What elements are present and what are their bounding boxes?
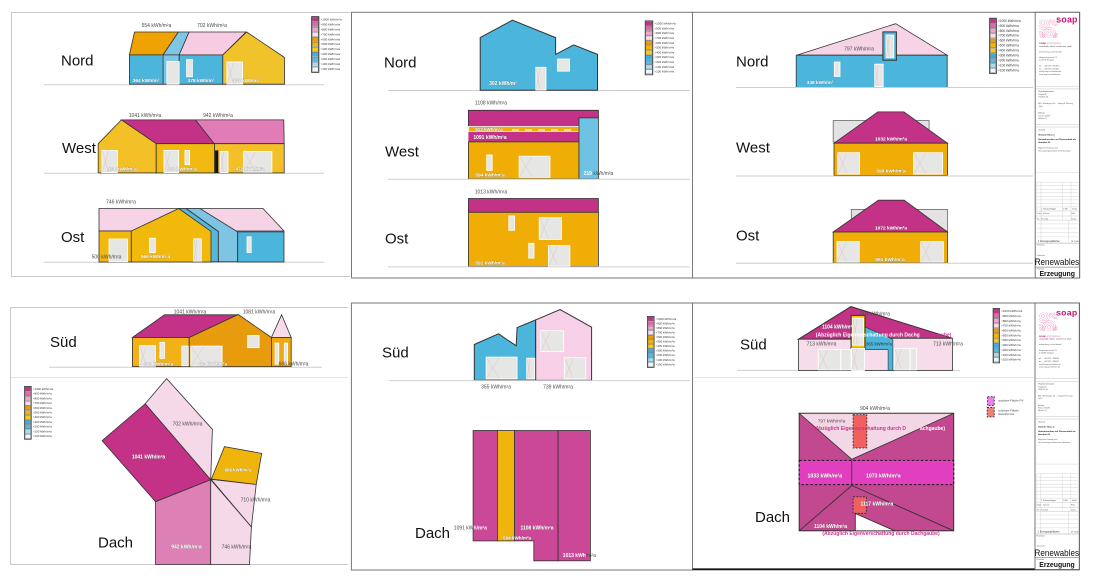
svg-text:Projekt-Nr.: Projekt-Nr. [1038, 93, 1047, 96]
svg-text:Nord: Nord [736, 54, 769, 71]
svg-text:594 kWh/m²a: 594 kWh/m²a [503, 535, 532, 540]
svg-text:904 kWh/m²a: 904 kWh/m²a [860, 311, 890, 317]
svg-text:Datum: Datum [1071, 217, 1077, 220]
svg-text:>300 kWh/m²a: >300 kWh/m²a [654, 55, 674, 59]
svg-text:soap architekten: soap architekten [1039, 41, 1061, 45]
svg-text:B97: Würzburger Str. – Integra: B97: Würzburger Str. – Integrale Planung [1038, 394, 1072, 397]
svg-text:M 1:100: M 1:100 [1071, 241, 1078, 243]
svg-text:>900 kWh/m²a: >900 kWh/m²a [656, 321, 675, 325]
svg-text:1032 kWh/m²a: 1032 kWh/m²a [875, 137, 907, 143]
svg-text:Variante Haus 3: Variante Haus 3 [1038, 425, 1055, 428]
svg-text:>700 kWh/m²a: >700 kWh/m²a [998, 34, 1019, 38]
svg-text:1 Erzeugungsflächen: 1 Erzeugungsflächen [1038, 532, 1061, 534]
svg-text:Hauptmannsreute 23: Hauptmannsreute 23 [1039, 349, 1057, 352]
svg-text:>300 kWh/m²a: >300 kWh/m²a [1001, 343, 1021, 347]
svg-text:Verschattungssituation ohne Na: Verschattungssituation ohne Nachbarn [1038, 149, 1070, 152]
svg-text:Standort 03: Standort 03 [1038, 433, 1051, 436]
svg-text:Hauptmannsreute 23: Hauptmannsreute 23 [1039, 56, 1057, 59]
svg-text:904 kWh/m²a: 904 kWh/m²a [860, 406, 890, 412]
svg-text:tel. +49 0711 / 990410: tel. +49 0711 / 990410 [1039, 64, 1059, 67]
svg-text:(Muster 1): (Muster 1) [1038, 409, 1047, 412]
svg-text:942 kWh/m²a: 942 kWh/m²a [203, 113, 233, 119]
svg-text:>500 kWh/m²a: >500 kWh/m²a [1001, 333, 1021, 337]
svg-text:378 kWh/m²: 378 kWh/m² [188, 78, 215, 84]
svg-text:Ost: Ost [736, 228, 760, 245]
svg-text:>800 kWh/m²a: >800 kWh/m²a [654, 31, 674, 35]
svg-text:Ost: Ost [61, 229, 85, 246]
svg-text:Verschattungssituation ohne Na: Verschattungssituation ohne Nachbarn [1038, 441, 1070, 444]
svg-text:Datum: Datum [1071, 508, 1077, 511]
svg-text:1 Schalunterlagen: 1 Schalunterlagen [1041, 499, 1056, 502]
svg-text:750437a-01: 750437a-01 [1038, 97, 1048, 99]
svg-text:Dach: Dach [755, 509, 790, 526]
svg-text:913 kWh/m²a: 913 kWh/m²a [475, 127, 503, 132]
svg-text:Auftrag:: Auftrag: [1038, 112, 1045, 115]
svg-text:aube): aube) [938, 332, 952, 338]
svg-text:739 kWh/m²a: 739 kWh/m²a [543, 385, 573, 391]
svg-text:(Abzüglich Eigenverschattung d: (Abzüglich Eigenverschattung durch Dachg… [822, 531, 940, 537]
svg-text:>500 kWh/m²a: >500 kWh/m²a [321, 42, 341, 46]
svg-text:>400 kWh/m²a: >400 kWh/m²a [656, 344, 675, 348]
svg-text:Index Variante: Index Variante [1037, 503, 1049, 506]
svg-text:1072 kWh/m²a: 1072 kWh/m²a [875, 225, 907, 231]
svg-text:Platz: Platz [1071, 503, 1075, 506]
svg-text:Auftrag:: Auftrag: [1038, 404, 1045, 407]
svg-text:>200 kWh/m²a: >200 kWh/m²a [998, 58, 1019, 62]
svg-text:1117 kWh/m²a: 1117 kWh/m²a [861, 502, 894, 508]
svg-text:-50%: -50% [1038, 106, 1043, 108]
svg-text:>600 kWh/m²a: >600 kWh/m²a [656, 335, 675, 339]
svg-text:<100 kWh/m²a: <100 kWh/m²a [33, 434, 52, 438]
svg-text:Holzrahmenbau mit Photovoltaik: Holzrahmenbau mit Photovoltaik als [1038, 138, 1076, 141]
svg-text:<100 kWh/m²a: <100 kWh/m²a [656, 362, 675, 366]
svg-text:>800 kWh/m²a: >800 kWh/m²a [33, 396, 52, 400]
svg-text:<100 kWh/m²a: <100 kWh/m²a [1001, 358, 1021, 362]
svg-text:348 kWh/m²: 348 kWh/m² [807, 80, 834, 86]
svg-text:433 kWh/m²: 433 kWh/m² [233, 78, 260, 84]
svg-text:590 kWh/m²a: 590 kWh/m²a [876, 169, 906, 175]
svg-text:>700 kWh/m²a: >700 kWh/m²a [321, 32, 341, 36]
svg-text:594 kWh/m²a: 594 kWh/m²a [475, 173, 505, 179]
svg-text:593 kWh/m²a: 593 kWh/m²a [144, 361, 174, 367]
svg-text:soap: soap [1056, 308, 1077, 318]
svg-text:1041 kWh/m²a: 1041 kWh/m²a [132, 455, 166, 461]
svg-text:M 1:100: M 1:100 [1071, 532, 1078, 534]
svg-text:Erzeugung: Erzeugung [1039, 560, 1075, 569]
svg-text:1104 kWh/m²a: 1104 kWh/m²a [814, 524, 847, 530]
svg-text:Süd: Süd [50, 334, 77, 351]
svg-text:>300 kWh/m²a: >300 kWh/m²a [321, 52, 341, 56]
svg-text:West: West [385, 144, 420, 161]
svg-text:Standort 03: Standort 03 [1038, 141, 1051, 144]
svg-text:soap: soap [1056, 15, 1078, 25]
svg-text:>900 kWh/m²a: >900 kWh/m²a [1001, 314, 1021, 318]
svg-text:>100 kWh/m²a: >100 kWh/m²a [998, 63, 1019, 67]
svg-text:<100 kWh/m²a: <100 kWh/m²a [654, 70, 674, 74]
svg-text:591 kWh/m²a: 591 kWh/m²a [475, 260, 505, 266]
svg-text:1091 kWh/m²a: 1091 kWh/m²a [473, 135, 507, 141]
svg-text:746 kWh/m²a: 746 kWh/m²a [222, 545, 252, 551]
svg-text:>200 kWh/m²a: >200 kWh/m²a [656, 353, 675, 357]
svg-text:>800 kWh/m²a: >800 kWh/m²a [998, 29, 1019, 33]
svg-text:>500 kWh/m²a: >500 kWh/m²a [656, 340, 675, 344]
svg-text:>700 kWh/m²a: >700 kWh/m²a [33, 401, 52, 405]
svg-text:West: West [736, 140, 771, 157]
svg-text:fax +49 0711 / 990411: fax +49 0711 / 990411 [1039, 68, 1059, 70]
svg-text:Eigenverschattung und: Eigenverschattung und [1038, 146, 1057, 149]
svg-text:>900 kWh/m²a: >900 kWh/m²a [654, 26, 674, 30]
svg-text:>400 kWh/m²a: >400 kWh/m²a [1001, 338, 1021, 342]
svg-text:1:100: 1:100 [1063, 500, 1067, 502]
svg-text:Erzeugung: Erzeugung [1039, 269, 1075, 278]
svg-text:>700 kWh/m²a: >700 kWh/m²a [654, 36, 674, 40]
svg-text:>1000 kWh/m²a: >1000 kWh/m²a [33, 387, 54, 391]
svg-text:Index Variante: Index Variante [1037, 212, 1049, 215]
svg-text:Nr. Pl.-Inhalt: Nr. Pl.-Inhalt [1037, 508, 1048, 511]
svg-text:702 kWh/m²a: 702 kWh/m²a [197, 23, 227, 29]
svg-text:Variante Haus 3: Variante Haus 3 [1038, 133, 1055, 136]
svg-text:Nr. Pl.-Inhalt: Nr. Pl.-Inhalt [1037, 217, 1048, 220]
svg-text:710 kWh/m²a: 710 kWh/m²a [241, 498, 271, 504]
svg-text:B97: Würzburger Str. – Integra: B97: Würzburger Str. – Integrale Planung [1038, 102, 1073, 105]
svg-text:(Muster 1): (Muster 1) [1038, 117, 1047, 120]
svg-text:Gewerk: Gewerk [1038, 420, 1045, 423]
svg-text:>400 kWh/m²a: >400 kWh/m²a [33, 415, 52, 419]
svg-text:miriam berry, rachel brandt: miriam berry, rachel brandt [1039, 343, 1062, 346]
svg-text:(Abzüglich Eigenverschattung d: (Abzüglich Eigenverschattung durch D [814, 426, 907, 432]
svg-text:591 kWh/m²a: 591 kWh/m²a [875, 257, 905, 263]
svg-text:>100 kWh/m²a: >100 kWh/m²a [654, 65, 674, 69]
svg-text:>200 kWh/m²a: >200 kWh/m²a [654, 60, 674, 64]
svg-text:>200 kWh/m²a: >200 kWh/m²a [321, 57, 341, 61]
svg-text:1091 kWh/m²a: 1091 kWh/m²a [454, 526, 487, 532]
svg-text:746 kWh/m²a: 746 kWh/m²a [106, 200, 136, 206]
svg-text:219 kWh/m²a: 219 kWh/m²a [584, 171, 614, 177]
svg-text:302 kWh/m²: 302 kWh/m² [489, 81, 517, 87]
svg-text:tel. +49 0711 / 990410: tel. +49 0711 / 990410 [1039, 357, 1059, 360]
svg-text:>700 kWh/m²a: >700 kWh/m²a [656, 330, 675, 334]
svg-text:364 kWh/m²: 364 kWh/m² [133, 78, 160, 84]
svg-text:606 kWh/m²a: 606 kWh/m²a [225, 468, 252, 473]
svg-text:797 kWh/m²a: 797 kWh/m²a [844, 47, 874, 53]
svg-text:>600 kWh/m²a: >600 kWh/m²a [998, 39, 1019, 43]
svg-text:>500 kWh/m²a: >500 kWh/m²a [33, 411, 52, 415]
svg-text:500 kWh/m²a: 500 kWh/m²a [92, 255, 122, 261]
svg-text:Projekt-Nr.: Projekt-Nr. [1038, 385, 1047, 388]
svg-text:>400 kWh/m²a: >400 kWh/m²a [654, 50, 674, 54]
svg-text:750437a-01: 750437a-01 [1038, 389, 1048, 391]
svg-text:702 kWh/m²a: 702 kWh/m²a [173, 422, 203, 428]
svg-text:Projektinformation: Projektinformation [1038, 90, 1054, 93]
svg-text:>900 kWh/m²a: >900 kWh/m²a [998, 24, 1019, 28]
svg-text:Nord: Nord [384, 55, 417, 72]
svg-text:1108 kWh/m²a: 1108 kWh/m²a [520, 526, 553, 532]
svg-text:sustainable. effects. architec: sustainable. effects. architecture. pool… [1039, 45, 1072, 48]
svg-text:>1000 kWh/m²a: >1000 kWh/m²a [1001, 309, 1023, 313]
svg-text:Platz: Platz [1071, 212, 1075, 215]
svg-text:>200 kWh/m²a: >200 kWh/m²a [33, 425, 52, 429]
svg-text:Gewerk: Gewerk [1038, 129, 1045, 131]
svg-text:miriam berry, rachel brandt: miriam berry, rachel brandt [1039, 50, 1062, 53]
svg-text:>100 kWh/m²a: >100 kWh/m²a [33, 429, 52, 433]
svg-text:Planinhalt: Planinhalt [1037, 535, 1045, 538]
svg-text:797 kWh/m²a: 797 kWh/m²a [818, 419, 846, 424]
svg-text:achgaube): achgaube) [920, 426, 945, 432]
svg-text:Dach: Dach [98, 535, 133, 552]
svg-text:>700 kWh/m²a: >700 kWh/m²a [1001, 324, 1021, 328]
svg-text:>600 kWh/m²a: >600 kWh/m²a [654, 41, 674, 45]
svg-text:>1000 kWh/m²a: >1000 kWh/m²a [654, 21, 676, 25]
svg-text:Süd: Süd [740, 337, 767, 354]
svg-text:Solarthermie: Solarthermie [998, 412, 1015, 416]
svg-text:>800 kWh/m²a: >800 kWh/m²a [321, 27, 341, 31]
svg-text:>100 kWh/m²a: >100 kWh/m²a [321, 62, 341, 66]
svg-text:>600 kWh/m²a: >600 kWh/m²a [33, 406, 52, 410]
svg-text:Holzrahmenbau mit Photovoltaik: Holzrahmenbau mit Photovoltaik als [1038, 430, 1076, 433]
svg-text:Renewables: Renewables [1035, 548, 1080, 558]
svg-text:>400 kWh/m²a: >400 kWh/m²a [321, 47, 341, 51]
svg-text:D-70192 Stuttgart: D-70192 Stuttgart [1039, 351, 1054, 354]
svg-text:mail@soap-architekten.de: mail@soap-architekten.de [1039, 70, 1061, 73]
svg-text:Eigenverschattung und: Eigenverschattung und [1038, 438, 1057, 441]
svg-text:>100 kWh/m²a: >100 kWh/m²a [656, 358, 675, 362]
svg-text:1081 kWh/m²a: 1081 kWh/m²a [243, 310, 276, 316]
svg-text:soap architekten: soap architekten [1039, 334, 1061, 338]
svg-text:1 Erzeugungsflächen: 1 Erzeugungsflächen [1038, 240, 1061, 243]
svg-text:>500 kWh/m²a: >500 kWh/m²a [654, 46, 674, 50]
svg-text:Immos GmbH: Immos GmbH [1038, 115, 1050, 117]
svg-text:>100 kWh/m²a: >100 kWh/m²a [1001, 353, 1021, 357]
svg-text:1013 kWh/m²a: 1013 kWh/m²a [563, 553, 596, 559]
svg-text:D-70192 Stuttgart: D-70192 Stuttgart [1039, 59, 1054, 62]
svg-text:666 kWh/m²a: 666 kWh/m²a [279, 361, 309, 367]
svg-text:1 Schalunterlagen: 1 Schalunterlagen [1041, 208, 1056, 211]
svg-text:>800 kWh/m²a: >800 kWh/m²a [656, 326, 675, 330]
svg-text:>400 kWh/m²a: >400 kWh/m²a [998, 49, 1019, 53]
svg-text:>300 kWh/m²a: >300 kWh/m²a [33, 420, 52, 424]
svg-text:1013 kWh/m²a: 1013 kWh/m²a [475, 190, 508, 196]
svg-text:Ost: Ost [385, 231, 409, 248]
svg-text:1108 kWh/m²a: 1108 kWh/m²a [475, 101, 507, 107]
svg-text:>900 kWh/m²a: >900 kWh/m²a [321, 22, 341, 26]
svg-text:Planinhalt: Planinhalt [1037, 244, 1045, 247]
svg-text:Dach: Dach [415, 525, 450, 542]
svg-text:>900 kWh/m²a: >900 kWh/m²a [33, 392, 52, 396]
svg-text:Projektinformation: Projektinformation [1038, 383, 1054, 386]
svg-text:643 kWh/m²a: 643 kWh/m²a [198, 361, 228, 367]
svg-text:713 kWh/m²a: 713 kWh/m²a [933, 342, 963, 348]
svg-text:713 kWh/m²a: 713 kWh/m²a [807, 342, 837, 348]
svg-text:1104 kWh/m²: 1104 kWh/m² [822, 325, 853, 331]
svg-text:Nord: Nord [61, 53, 94, 70]
svg-text:Renewables: Renewables [1035, 257, 1080, 267]
svg-text:1:100: 1:100 [1063, 209, 1068, 211]
svg-text:(Abzüglich Eigenverschattung d: (Abzüglich Eigenverschattung durch Dachg [816, 332, 920, 338]
svg-text:365 kWh/m²a: 365 kWh/m²a [866, 342, 893, 347]
svg-text:www.soap-architekten.de: www.soap-architekten.de [1039, 365, 1060, 368]
svg-text:<100 kWh/m²a: <100 kWh/m²a [998, 68, 1019, 72]
svg-text:10.04.: 10.04. [1072, 209, 1077, 211]
svg-text:1073 kWh/m²a: 1073 kWh/m²a [866, 474, 901, 480]
svg-text:>1000 kWh/m²a: >1000 kWh/m²a [321, 17, 343, 21]
svg-text:566 kWh/m²a: 566 kWh/m²a [141, 254, 171, 260]
svg-text:Süd: Süd [382, 345, 409, 362]
svg-text:nutzbare Fläche PV: nutzbare Fläche PV [998, 399, 1024, 403]
svg-text:>1000 kWh/m²a: >1000 kWh/m²a [998, 19, 1021, 23]
svg-text:>300 kWh/m²a: >300 kWh/m²a [998, 54, 1019, 58]
svg-text:www.soap-architekten.de: www.soap-architekten.de [1039, 73, 1060, 76]
svg-text:472 kWh/m²a: 472 kWh/m²a [235, 166, 265, 172]
svg-text:593 kWh/m²a: 593 kWh/m²a [167, 166, 197, 172]
svg-text:1033 kWh/m²a: 1033 kWh/m²a [807, 474, 842, 480]
svg-text:10.04.: 10.04. [1072, 500, 1077, 502]
svg-text:>600 kWh/m²a: >600 kWh/m²a [321, 37, 341, 41]
svg-text:West: West [62, 140, 97, 157]
svg-text:fax +49 0711 / 990411: fax +49 0711 / 990411 [1039, 361, 1059, 363]
svg-text:942 kWh/m²a: 942 kWh/m²a [171, 545, 202, 551]
svg-text:mail@soap-architekten.de: mail@soap-architekten.de [1039, 363, 1061, 366]
svg-text:-50%: -50% [1038, 398, 1043, 400]
svg-text:>200 kWh/m²a: >200 kWh/m²a [1001, 348, 1021, 352]
svg-text:sustainable. effects. architec: sustainable. effects. architecture. pool… [1039, 338, 1072, 341]
svg-text:1041 kWh/m²a: 1041 kWh/m²a [129, 113, 162, 119]
svg-text:554 kWh/m²a: 554 kWh/m²a [142, 23, 172, 29]
svg-text:>800 kWh/m²a: >800 kWh/m²a [1001, 319, 1021, 323]
svg-text:>1000 kWh/m²a: >1000 kWh/m²a [656, 317, 677, 321]
svg-text:<100 kWh/m²a: <100 kWh/m²a [321, 67, 341, 71]
svg-text:>600 kWh/m²a: >600 kWh/m²a [1001, 328, 1021, 332]
svg-text:433 kWh/m²a: 433 kWh/m²a [107, 166, 137, 172]
svg-text:>500 kWh/m²a: >500 kWh/m²a [998, 44, 1019, 48]
svg-text:>300 kWh/m²a: >300 kWh/m²a [656, 349, 675, 353]
svg-text:355 kWh/m²a: 355 kWh/m²a [481, 385, 511, 391]
